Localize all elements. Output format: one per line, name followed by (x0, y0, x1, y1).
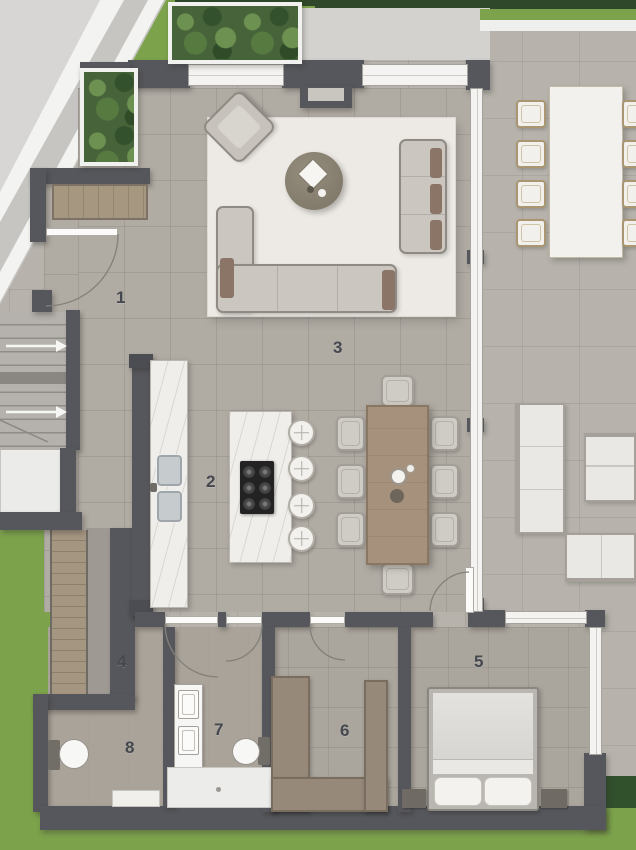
dining-chair-r3 (430, 512, 459, 547)
outdoor-chair-r3 (622, 180, 636, 208)
wall-stair-side (66, 310, 80, 450)
planter-top (168, 2, 302, 64)
room-number-2: 2 (206, 472, 215, 492)
outdoor-dining-table (549, 86, 623, 258)
wall-wing-c (345, 612, 433, 627)
window-bedroom-east (589, 627, 602, 755)
hedge-bottom-right (602, 776, 636, 808)
lounge-sofa-vertical (515, 403, 565, 534)
dining-cup (406, 464, 415, 473)
fireplace-inner (308, 88, 344, 101)
coffee-table (285, 152, 343, 210)
wall-kitchen-back (132, 356, 150, 616)
dining-chair-top (381, 375, 414, 407)
bed-fold-band (433, 759, 533, 775)
sofa2-pillow-2 (430, 184, 442, 214)
sofa-pillow-right (382, 270, 395, 310)
sofa2-pillow-1 (430, 148, 442, 178)
bar-stool-2 (288, 455, 315, 482)
planter-left (80, 68, 138, 166)
wall-wing-post-a (218, 612, 226, 627)
room-number-5: 5 (474, 652, 483, 672)
shower-drain (216, 787, 221, 792)
sofa-main (216, 264, 397, 313)
wall-fireplace-pier (282, 60, 364, 88)
bar-stool-1 (288, 419, 315, 446)
room-number-6: 6 (340, 721, 349, 741)
window-bedroom-north (505, 611, 587, 624)
outdoor-chair-r1 (622, 100, 636, 128)
entry-door-leaf (46, 228, 118, 236)
wall-entry-post (32, 290, 52, 312)
outdoor-chair-l2 (516, 140, 546, 168)
nightstand-left (402, 789, 426, 808)
room-number-1: 1 (116, 288, 125, 308)
outdoor-chair-l3 (516, 180, 546, 208)
dining-chair-l3 (336, 512, 365, 547)
kitchen-sink-1 (156, 454, 183, 487)
wood-deck-strip (50, 530, 88, 710)
stair-landing (0, 372, 68, 384)
window-top-2 (362, 64, 468, 86)
cooktop (240, 461, 274, 514)
dining-chair-r1 (430, 416, 459, 451)
outdoor-chair-r4 (622, 219, 636, 247)
grass-bottom-right (606, 805, 636, 850)
coffee-table-tray (299, 160, 327, 188)
room-number-3: 3 (333, 338, 342, 358)
outdoor-chair-l4 (516, 219, 546, 247)
wall-west-jog (33, 694, 135, 710)
room-number-7: 7 (214, 720, 223, 740)
closet-door-leaf (310, 616, 345, 624)
wall-wing-b (262, 612, 310, 627)
toilet7-bowl (232, 738, 260, 765)
wall-closet-bedroom (398, 627, 411, 812)
dining-chair-bottom (381, 563, 414, 595)
wall-west-lower (33, 694, 48, 812)
armchair-cushion (216, 104, 261, 149)
window-top-1 (188, 64, 284, 86)
glass-wall-east (470, 88, 483, 612)
entry-bench (52, 184, 148, 220)
toilet8-bowl (59, 739, 89, 769)
grass-top-left (70, 0, 175, 64)
dining-plate (390, 468, 407, 485)
grass-top-right (480, 9, 636, 21)
vanity-sink-2 (178, 726, 199, 755)
wardrobe-right-arm (364, 680, 388, 812)
bath8-mat (112, 790, 160, 807)
bed-pillow-left (434, 777, 482, 806)
kitchen-sink-2 (156, 490, 183, 523)
nightstand-right (541, 789, 567, 808)
room-number-8: 8 (125, 738, 134, 758)
terrace-edge-top (480, 20, 636, 31)
dining-chair-l2 (336, 464, 365, 499)
sofa2-pillow-3 (430, 220, 442, 250)
lounge-daybed (584, 433, 636, 502)
room-number-4: 4 (117, 652, 126, 672)
grass-bottom (0, 828, 636, 850)
vanity-sink-1 (178, 690, 199, 719)
coffee-table-decor-dark (307, 186, 314, 193)
sofa-pillow-left (220, 258, 234, 298)
dining-chair-l1 (336, 416, 365, 451)
outdoor-chair-r2 (622, 140, 636, 168)
bath7-door-leaf (226, 616, 262, 624)
garage-room (0, 448, 62, 514)
wall-entry-top (30, 168, 150, 184)
bedroom-door-leaf (465, 567, 474, 613)
bed-pillow-right (484, 777, 532, 806)
dining-table (366, 405, 429, 565)
floor-plan-canvas: 1 2 3 4 5 6 7 8 (0, 0, 636, 850)
wall-entry-left (30, 168, 46, 242)
dining-bowl (390, 489, 404, 503)
bed (427, 687, 539, 811)
wall-garage-bottom (0, 512, 82, 530)
bar-stool-4 (288, 525, 315, 552)
walkway-top (300, 8, 490, 60)
kitchen-faucet (150, 483, 157, 492)
bar-stool-3 (288, 492, 315, 519)
coffee-table-decor-light (318, 189, 326, 197)
wall-garage-right (60, 448, 76, 516)
dining-chair-r2 (430, 464, 459, 499)
outdoor-chair-l1 (516, 100, 546, 128)
wall-top-pier-right (466, 60, 490, 90)
lounge-sofa-horizontal (565, 533, 636, 582)
wall-shadow-strip (86, 528, 112, 700)
wall-wing-a (135, 612, 165, 627)
bed-duvet (433, 693, 533, 761)
wall-wing-post-e (585, 610, 605, 627)
bath8-door-leaf (165, 616, 218, 624)
